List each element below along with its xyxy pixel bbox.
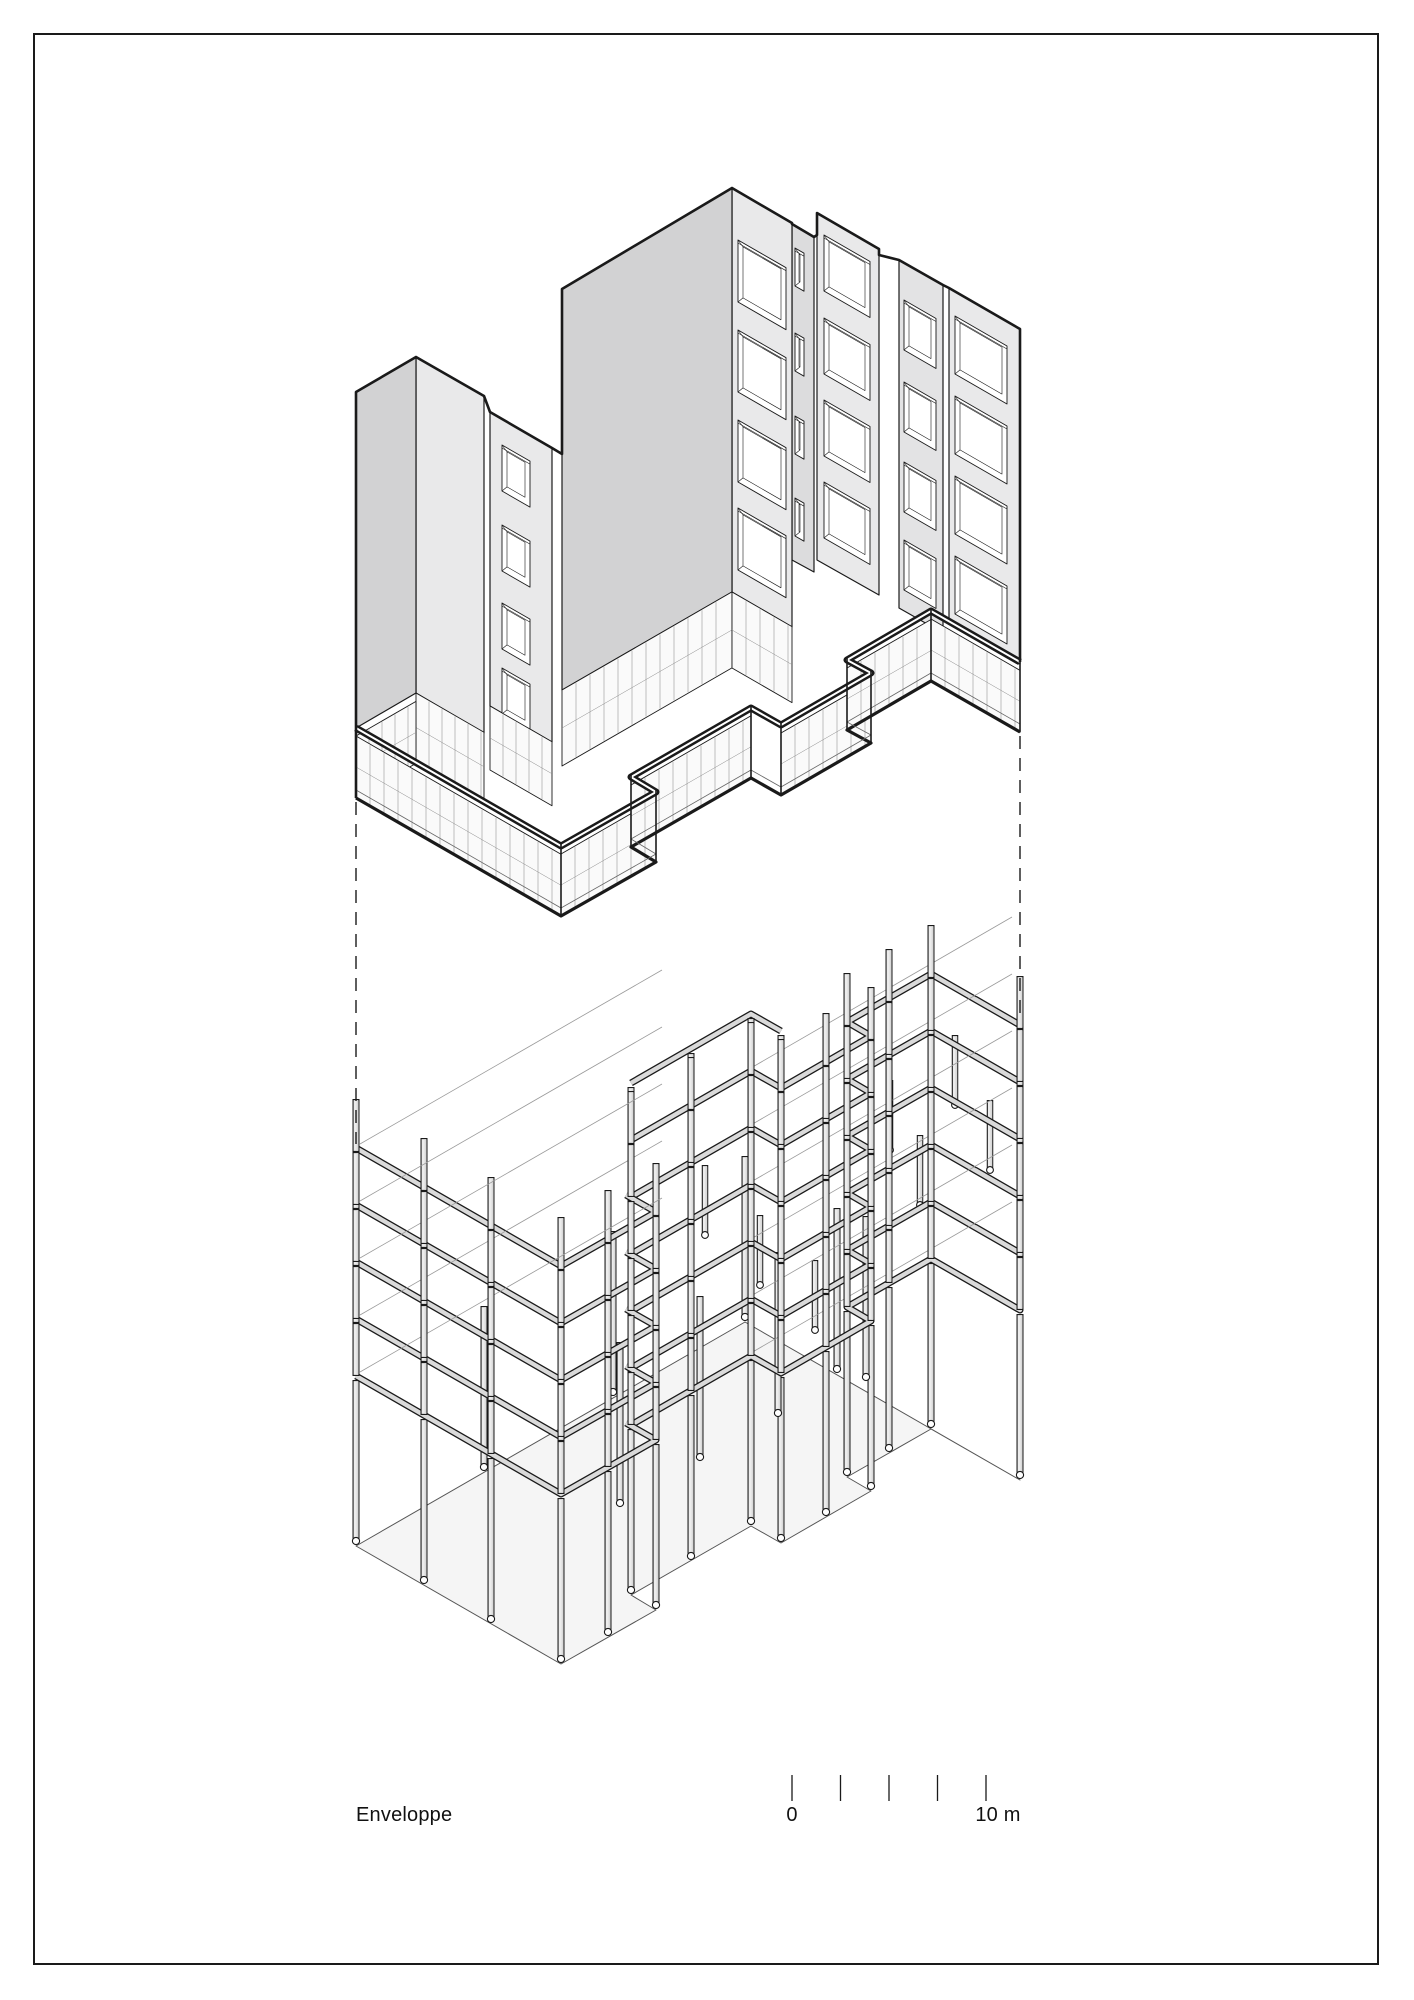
structure-frame — [352, 917, 1023, 1664]
scalebar-ten-label: 10 m — [950, 1804, 1046, 1827]
envelope-label: Enveloppe — [356, 1804, 452, 1827]
scale-bar — [792, 1775, 986, 1801]
drawing-page: Enveloppe 0 10 m — [0, 0, 1414, 2000]
scalebar-zero-label: 0 — [772, 1804, 812, 1827]
exploded-axonometric-drawing — [0, 0, 1414, 2000]
envelope-shell — [356, 188, 1020, 916]
